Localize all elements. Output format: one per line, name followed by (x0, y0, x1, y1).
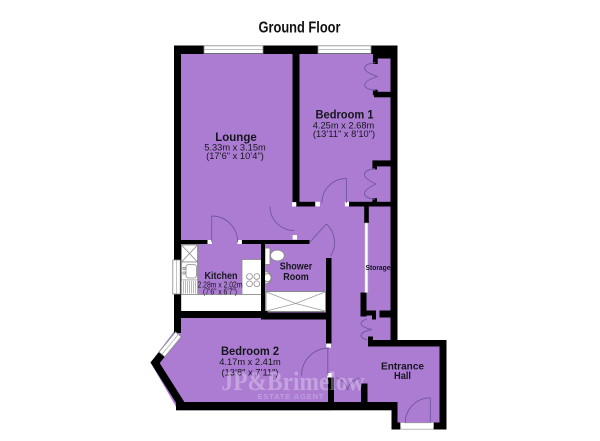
svg-text:Storage: Storage (366, 263, 391, 272)
svg-text:(17’6" x 10’4"): (17’6" x 10’4") (206, 151, 264, 161)
svg-text:(7’6" x 6’7"): (7’6" x 6’7") (203, 286, 237, 296)
svg-text:Ground Floor: Ground Floor (259, 20, 341, 37)
svg-text:Room: Room (283, 271, 309, 283)
svg-text:Hall: Hall (394, 370, 411, 382)
svg-text:ESTATE AGENT: ESTATE AGENT (258, 392, 324, 401)
svg-text:(13’11" x 8’10"): (13’11" x 8’10") (313, 129, 375, 139)
svg-text:4.17m x 2.41m: 4.17m x 2.41m (219, 357, 281, 367)
